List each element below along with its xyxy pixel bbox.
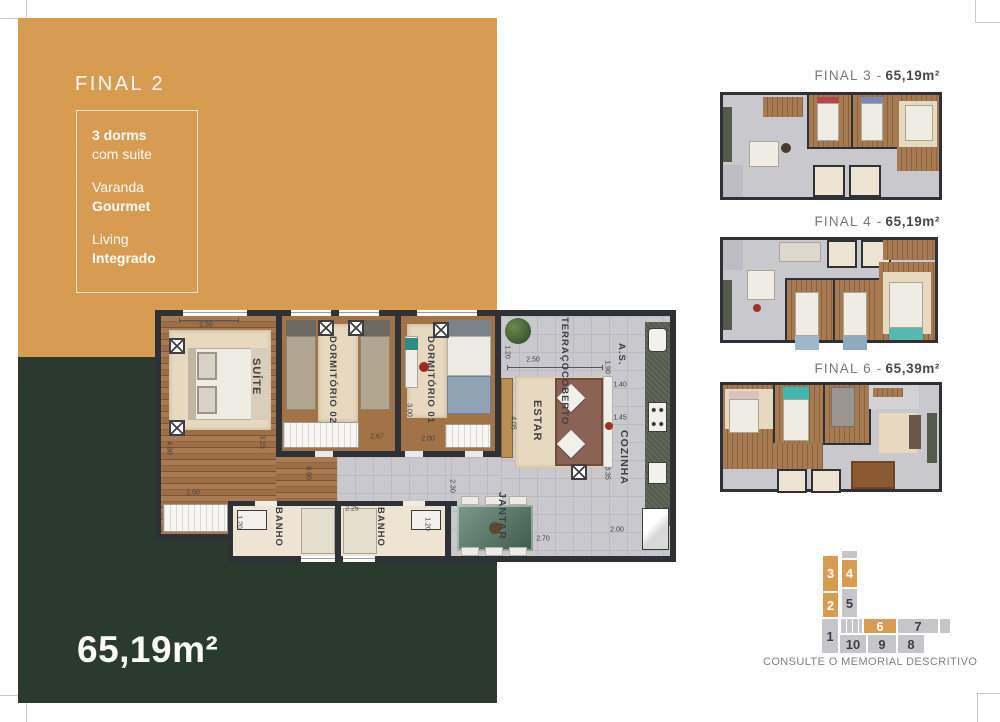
dimension-label: 1.90	[604, 360, 611, 374]
room-label-banho1: BANHO	[273, 507, 284, 547]
feature-living: Living Integrado	[92, 230, 197, 268]
dimension-line	[507, 367, 603, 368]
dorm1-bed-sheet	[447, 336, 491, 376]
ceiling-fixture-icon	[169, 420, 185, 436]
dimension-label: 2.00	[610, 527, 624, 534]
ceiling-fixture-icon	[169, 338, 185, 354]
dorm2-bed1	[286, 336, 316, 410]
feature-varanda: Varanda Gourmet	[92, 178, 197, 216]
room-label-terraco: TERRAÇOCOBERTO	[559, 317, 570, 425]
dimension-label: 2.50	[199, 322, 213, 329]
crop-mark	[977, 693, 1000, 694]
room-label-dorm2: DORMITÓRIO 02	[327, 336, 338, 424]
keyplan-unit-9: 9	[867, 634, 897, 654]
dorm2-rug	[318, 324, 358, 422]
wall	[155, 310, 161, 540]
door-opening	[255, 501, 277, 506]
dimension-label: 2.70	[536, 536, 550, 543]
ceiling-fixture-icon	[348, 320, 364, 336]
wall	[395, 316, 401, 451]
dorm1-bed-duvet	[447, 376, 491, 414]
keyplan-unit-3: 3	[822, 555, 839, 592]
brochure-page: FINAL 2 3 dorms com suite Varanda Gourme…	[0, 0, 1000, 722]
memorial-note: CONSULTE O MEMORIAL DESCRITIVO	[763, 656, 958, 668]
wall	[155, 534, 233, 540]
banho1-shower	[301, 508, 335, 554]
dimension-label: 2.50	[526, 357, 540, 364]
window	[183, 310, 247, 316]
suite-floor-ext	[276, 457, 337, 506]
fridge	[642, 508, 669, 550]
keyplan-unit-1: 1	[821, 618, 839, 654]
feature-box: 3 dorms com suite Varanda Gourmet Living…	[76, 110, 198, 293]
door-opening	[315, 451, 333, 457]
keyplan-unit-4: 4	[841, 559, 858, 588]
dimension-label: 1.50	[186, 490, 200, 497]
dimension-label: 2.00	[421, 436, 435, 443]
unit-area-label: 65,19m²	[77, 629, 218, 671]
window	[301, 556, 335, 562]
kitchen-sink	[648, 462, 667, 484]
crop-mark	[977, 693, 978, 722]
keyplan-core	[939, 618, 951, 634]
dining-chair	[461, 547, 479, 556]
unit-title-final6: FINAL 6 -65,39m²	[735, 361, 940, 376]
wall	[228, 556, 676, 562]
orange-panel: FINAL 2 3 dorms com suite Varanda Gourme…	[18, 18, 497, 357]
room-label-estar: ESTAR	[531, 400, 543, 441]
dimension-label: 1.20	[236, 515, 243, 529]
wall	[276, 316, 282, 451]
door-opening	[465, 451, 483, 457]
main-floorplan: SUÍTE DORMITÓRIO 02 DORMITÓRIO 01 TERRAÇ…	[155, 310, 676, 566]
suite-bed-headboard	[188, 348, 195, 420]
door-opening	[405, 451, 423, 457]
wall	[495, 316, 501, 451]
crop-mark	[975, 22, 1000, 23]
mini-floorplan-final4	[720, 237, 938, 343]
crop-mark	[975, 0, 976, 22]
ceiling-fixture-icon	[571, 464, 587, 480]
dimension-label: 2.25	[345, 506, 359, 513]
keyplan-unit-8: 8	[897, 634, 925, 654]
dimension-label: 3.15	[259, 435, 266, 449]
plant-icon	[505, 318, 531, 344]
dining-chair	[461, 496, 479, 505]
dorm2-bed2-pillow	[360, 320, 390, 336]
laundry-tank	[648, 328, 667, 352]
wall	[335, 501, 341, 562]
dimension-label: 4.90	[166, 441, 173, 455]
decor-flowers	[605, 422, 613, 430]
keyplan-unit-7: 7	[897, 618, 939, 634]
room-label-as: A.S.	[616, 343, 627, 365]
keyplan-core	[839, 618, 863, 634]
suite-pillow	[197, 352, 217, 380]
dimension-label: 1.45	[613, 415, 627, 422]
page-title: FINAL 2	[75, 73, 165, 96]
dorm1-closet	[445, 424, 491, 448]
dimension-label: 4.05	[510, 416, 517, 430]
suite-closet	[163, 504, 228, 532]
window	[343, 556, 375, 562]
dimension-label: 3.35	[604, 466, 611, 480]
keyplan-core	[841, 550, 858, 559]
dimension-label: 1.20	[504, 345, 511, 359]
stove	[648, 402, 667, 432]
ceiling-fixture-icon	[318, 320, 334, 336]
keyplan-unit-5: 5	[841, 588, 858, 618]
wall	[445, 501, 451, 562]
suite-pillow	[197, 386, 217, 414]
dining-chair	[509, 547, 527, 556]
keyplan-unit-10: 10	[839, 634, 867, 654]
dimension-label: 3.00	[406, 403, 413, 417]
dimension-label: 1.20	[424, 517, 431, 531]
room-label-jantar: JANTAR	[496, 492, 508, 540]
room-label-suite: SUÍTE	[250, 358, 262, 395]
dorm2-bed2	[360, 336, 390, 410]
window	[291, 310, 331, 316]
dorm1-bed-pillow	[447, 320, 491, 336]
room-label-dorm1: DORMITÓRIO 01	[425, 336, 436, 424]
wall	[228, 501, 233, 562]
wall	[670, 310, 676, 562]
banho2-shower	[343, 508, 377, 554]
dorm2-bed1-pillow	[286, 320, 316, 336]
window	[339, 310, 379, 316]
mini-floorplan-final3	[720, 92, 942, 200]
unit-title-final4: FINAL 4 -65,19m²	[735, 214, 940, 229]
feature-dorms: 3 dorms com suite	[92, 126, 197, 164]
dimension-label: 0.90	[305, 466, 312, 480]
room-label-banho2: BANHO	[375, 507, 386, 547]
dimension-label: 2.67	[370, 434, 384, 441]
window	[417, 310, 477, 316]
door-opening	[403, 501, 425, 506]
mini-floorplan-final6	[720, 382, 942, 492]
dorm2-closet	[283, 422, 359, 448]
crop-mark	[26, 0, 27, 18]
dorm1-desk-item	[405, 338, 418, 350]
dining-chair	[509, 496, 527, 505]
dining-chair	[485, 547, 503, 556]
keyplan-unit-6: 6	[863, 618, 897, 634]
dimension-label: 2.30	[449, 479, 456, 493]
keyplan: 34251671098	[815, 548, 955, 658]
dimension-label: 1.40	[613, 382, 627, 389]
unit-title-final3: FINAL 3 -65,19m²	[735, 68, 940, 83]
keyplan-unit-2: 2	[822, 592, 839, 618]
room-label-cozinha: COZINHA	[618, 430, 630, 485]
